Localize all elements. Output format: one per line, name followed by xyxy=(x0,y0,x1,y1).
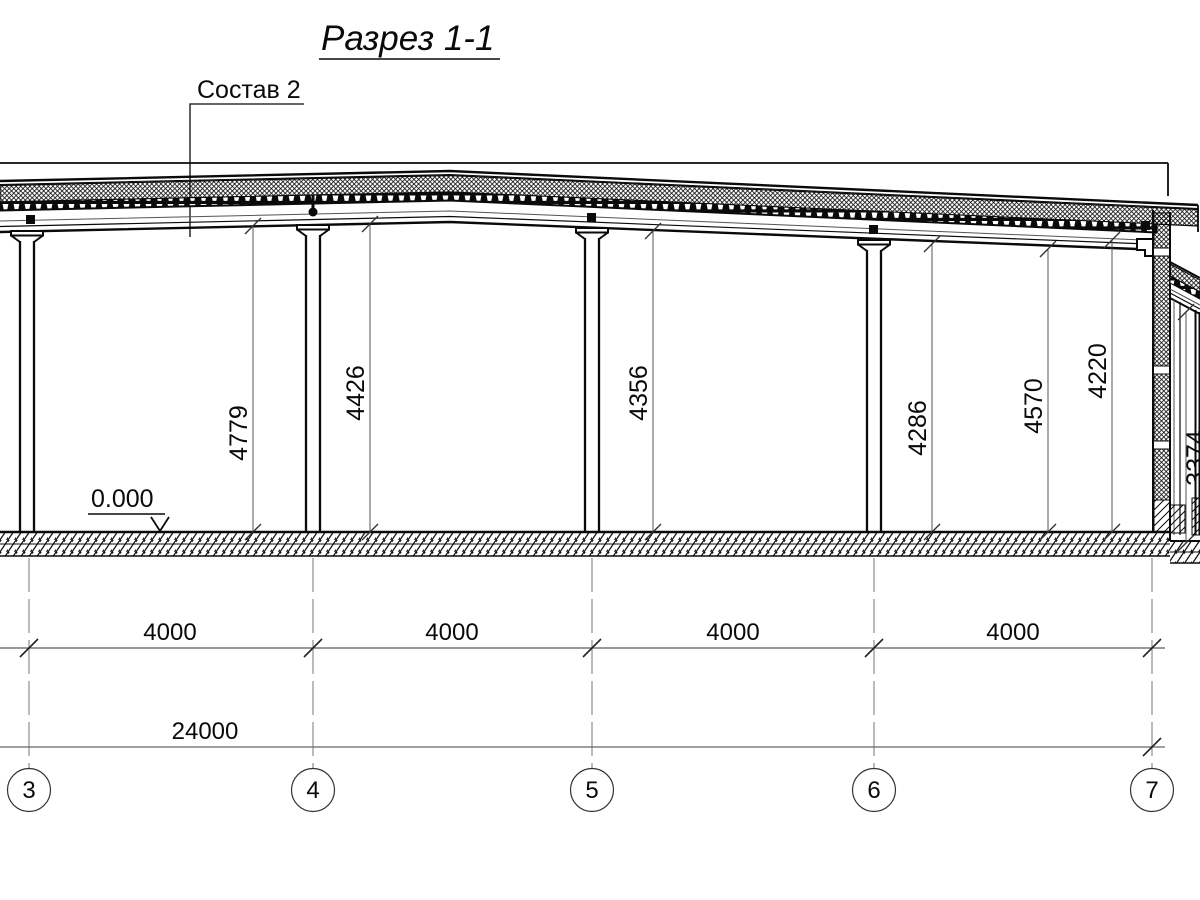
height-dim-label-3: 4356 xyxy=(625,365,653,421)
wall-masonry-block-1 xyxy=(1154,256,1170,366)
axis-label-6: 6 xyxy=(867,777,880,804)
wall-base-block xyxy=(1154,500,1170,532)
wall-masonry-block-2 xyxy=(1154,374,1170,441)
grid-bubble-7: 7 xyxy=(1131,769,1174,812)
annex-height-dim-label: 3374 xyxy=(1182,430,1200,486)
grid-bubble-4: 4 xyxy=(292,769,335,812)
height-dim-label-5: 4570 xyxy=(1020,378,1048,434)
exterior-wall-axis-7 xyxy=(1153,210,1170,541)
connection-plate-axis5 xyxy=(587,213,596,222)
span-dim-label-3: 4000 xyxy=(706,619,759,646)
annex-base-block-1 xyxy=(1170,505,1185,533)
grid-bubble-5: 5 xyxy=(571,769,614,812)
section-drawing: Разрез 1-1 Состав 2 xyxy=(0,0,1200,900)
connection-plate-axis3 xyxy=(26,215,35,224)
connection-plate-axis6 xyxy=(869,225,878,234)
title-block: Разрез 1-1 xyxy=(319,19,500,59)
height-dim-label-1: 4779 xyxy=(225,405,253,461)
grid-bubble-3: 3 xyxy=(8,769,51,812)
callout-label: Состав 2 xyxy=(197,76,301,104)
axis-label-7: 7 xyxy=(1145,777,1158,804)
drawing-title: Разрез 1-1 xyxy=(321,19,494,58)
drawing-sheet: Разрез 1-1 Состав 2 xyxy=(0,0,1200,900)
connection-plate-axis7 xyxy=(1141,221,1150,230)
wall-masonry-top xyxy=(1154,213,1170,248)
elevation-value: 0.000 xyxy=(91,485,154,513)
overall-dim-label: 24000 xyxy=(172,718,239,745)
grid-bubble-6: 6 xyxy=(853,769,896,812)
span-dim-label-4: 4000 xyxy=(986,619,1039,646)
roof-anchor-dot xyxy=(309,208,318,217)
height-dim-label-6: 4220 xyxy=(1084,343,1112,399)
axis-label-5: 5 xyxy=(585,777,598,804)
span-dim-label-1: 4000 xyxy=(143,619,196,646)
annex-base-block-2 xyxy=(1192,498,1200,535)
span-dim-label-2: 4000 xyxy=(425,619,478,646)
wall-masonry-block-3 xyxy=(1154,449,1170,500)
height-dim-label-4: 4286 xyxy=(904,400,932,456)
axis-label-3: 3 xyxy=(22,777,35,804)
axis-label-4: 4 xyxy=(306,777,319,804)
height-dim-label-2: 4426 xyxy=(342,365,370,421)
